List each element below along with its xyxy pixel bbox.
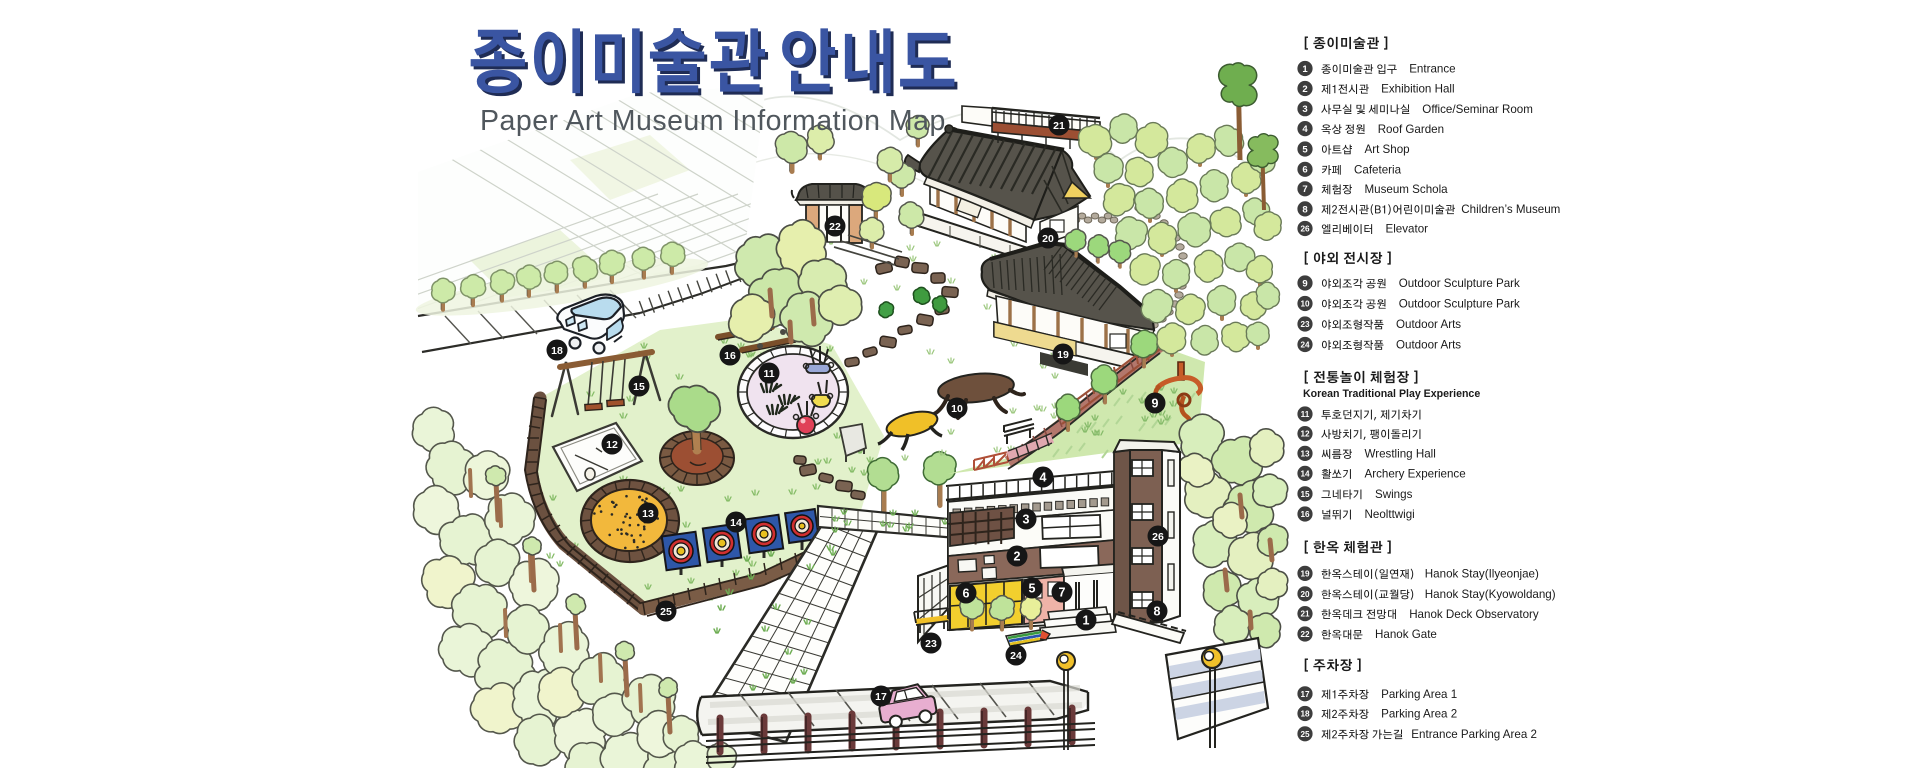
svg-text:15: 15: [633, 381, 645, 393]
svg-text:Archery Experience: Archery Experience: [1365, 468, 1466, 481]
svg-text:14: 14: [730, 517, 742, 529]
svg-text:1: 1: [1083, 614, 1090, 628]
svg-text:Children’s Museum: Children’s Museum: [1461, 203, 1560, 216]
svg-text:8: 8: [1154, 605, 1161, 619]
svg-text:23: 23: [1300, 320, 1310, 329]
svg-text:12: 12: [1300, 430, 1310, 439]
svg-text:16: 16: [724, 350, 736, 362]
svg-text:20: 20: [1042, 233, 1054, 245]
svg-text:Korean Traditional Play Experi: Korean Traditional Play Experience: [1303, 388, 1480, 400]
svg-text:12: 12: [606, 439, 618, 451]
svg-text:15: 15: [1300, 490, 1310, 499]
svg-text:17: 17: [1300, 690, 1310, 699]
svg-text:9: 9: [1302, 278, 1307, 289]
svg-text:23: 23: [925, 638, 937, 650]
svg-text:18: 18: [551, 345, 563, 357]
svg-text:Parking Area 1: Parking Area 1: [1381, 688, 1457, 701]
svg-text:Museum Schola: Museum Schola: [1365, 183, 1449, 196]
svg-text:1: 1: [1302, 64, 1308, 75]
svg-text:Outdoor Arts: Outdoor Arts: [1396, 318, 1461, 331]
svg-text:24: 24: [1300, 341, 1310, 350]
svg-text:6: 6: [1302, 165, 1307, 176]
svg-text:Outdoor Arts: Outdoor Arts: [1396, 339, 1461, 352]
svg-text:7: 7: [1302, 184, 1307, 195]
svg-text:4: 4: [1040, 471, 1047, 485]
svg-text:6: 6: [963, 587, 970, 601]
svg-text:21: 21: [1053, 120, 1065, 132]
svg-text:Cafeteria: Cafeteria: [1354, 164, 1402, 177]
svg-text:Entrance: Entrance: [1409, 63, 1455, 76]
svg-text:Paper Art Museum Information M: Paper Art Museum Information Map: [480, 105, 946, 137]
svg-text:Parking Area 2: Parking Area 2: [1381, 708, 1457, 721]
svg-text:19: 19: [1300, 569, 1310, 578]
svg-text:Roof Garden: Roof Garden: [1378, 123, 1444, 136]
svg-text:22: 22: [1300, 630, 1310, 639]
svg-text:Entrance Parking Area 2: Entrance Parking Area 2: [1411, 728, 1537, 741]
svg-text:Hanok Gate: Hanok Gate: [1375, 628, 1437, 641]
svg-text:Outdoor Sculpture Park: Outdoor Sculpture Park: [1399, 298, 1520, 311]
svg-text:11: 11: [763, 368, 774, 380]
svg-text:Wrestling Hall: Wrestling Hall: [1365, 448, 1436, 461]
svg-text:3: 3: [1023, 513, 1030, 527]
svg-text:4: 4: [1302, 124, 1308, 135]
svg-text:5: 5: [1302, 144, 1308, 155]
svg-text:Hanok Stay(Ilyeonjae): Hanok Stay(Ilyeonjae): [1425, 568, 1539, 581]
svg-text:Hanok Stay(Kyowoldang): Hanok Stay(Kyowoldang): [1425, 588, 1556, 601]
svg-text:22: 22: [829, 221, 841, 233]
svg-text:25: 25: [660, 606, 672, 618]
svg-text:Outdoor Sculpture Park: Outdoor Sculpture Park: [1399, 277, 1520, 290]
svg-text:10: 10: [1300, 300, 1310, 309]
svg-text:7: 7: [1059, 586, 1066, 600]
svg-text:18: 18: [1300, 710, 1310, 719]
svg-text:11: 11: [1301, 410, 1310, 419]
svg-text:26: 26: [1152, 531, 1164, 543]
svg-text:19: 19: [1057, 349, 1069, 361]
svg-text:13: 13: [642, 508, 654, 520]
svg-text:Hanok Deck Observatory: Hanok Deck Observatory: [1409, 608, 1539, 621]
svg-text:10: 10: [951, 403, 963, 415]
svg-text:20: 20: [1300, 590, 1310, 599]
svg-text:17: 17: [875, 691, 887, 703]
svg-text:3: 3: [1302, 104, 1307, 115]
svg-text:Neolttwigi: Neolttwigi: [1365, 508, 1415, 521]
svg-text:24: 24: [1010, 650, 1022, 662]
svg-text:Exhibition Hall: Exhibition Hall: [1381, 83, 1454, 96]
svg-text:5: 5: [1029, 582, 1036, 596]
svg-text:26: 26: [1300, 225, 1310, 234]
svg-text:2: 2: [1014, 550, 1021, 564]
svg-text:8: 8: [1302, 204, 1307, 215]
svg-text:Elevator: Elevator: [1386, 223, 1429, 236]
svg-text:14: 14: [1300, 469, 1310, 478]
svg-text:13: 13: [1300, 449, 1310, 458]
svg-text:Art Shop: Art Shop: [1365, 143, 1410, 156]
svg-text:2: 2: [1302, 84, 1307, 95]
svg-text:Swings: Swings: [1375, 488, 1413, 501]
svg-text:9: 9: [1152, 397, 1159, 411]
svg-text:21: 21: [1300, 610, 1310, 619]
svg-text:Office/Seminar Room: Office/Seminar Room: [1422, 103, 1533, 116]
svg-text:25: 25: [1300, 730, 1310, 739]
svg-text:16: 16: [1300, 510, 1310, 519]
